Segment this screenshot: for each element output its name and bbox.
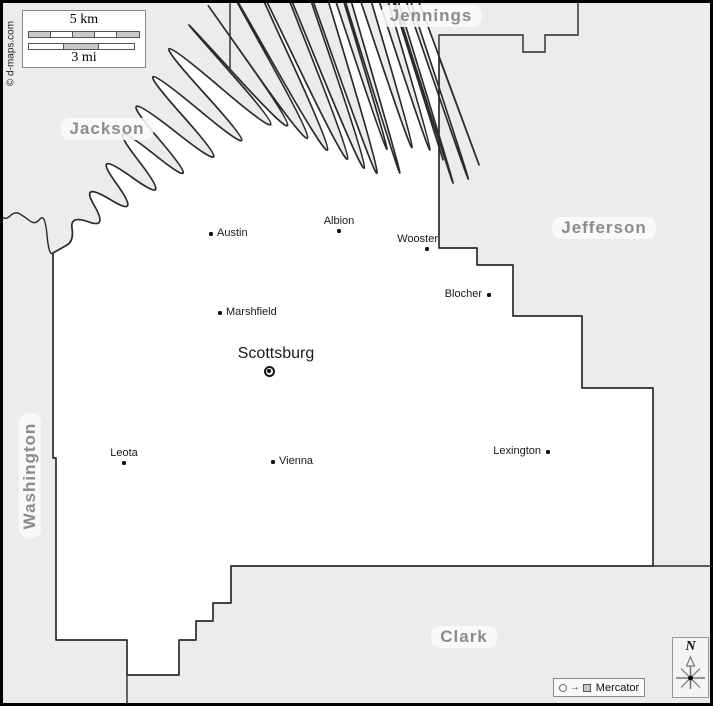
projection-label: Mercator [596,682,639,694]
scale-km-bar [28,31,140,38]
compass-star-icon [674,655,707,695]
county-seat-marker-icon [264,366,275,377]
scale-mi-bar [28,43,135,50]
town-dot [209,232,212,235]
town-label: Leota [110,447,138,459]
county-seat-label: Scottsburg [238,345,314,363]
town-label: Albion [324,215,355,227]
flat-map-square-icon [583,684,591,692]
attribution-text: © d-maps.com [6,9,17,99]
county-map-svg [0,0,713,706]
arrow-right-icon: → [570,684,580,692]
town-label: Blocher [445,288,482,300]
town-dot [425,247,428,250]
town-dot [271,460,274,463]
globe-circle-icon [559,684,567,692]
town-label: Vienna [279,455,313,467]
scale-mi-label: 3 mi [23,50,145,66]
town-dot [337,229,340,232]
town-dot [122,461,125,464]
compass-rose: N [672,637,709,698]
county-label-jefferson: Jefferson [552,217,656,239]
county-label-jennings: Jennings [381,5,482,27]
projection-legend: → Mercator [553,678,645,697]
compass-north-label: N [673,638,708,655]
town-dot [218,311,221,314]
county-label-jackson: Jackson [60,118,153,140]
town-dot [487,293,490,296]
map-canvas: Jennings Jackson Jefferson Washington Cl… [0,0,713,706]
town-label: Wooster [397,233,438,245]
town-label: Marshfield [226,306,277,318]
county-label-clark: Clark [431,626,497,648]
scale-bar: 5 km 3 mi [22,10,146,68]
town-dot [546,450,549,453]
county-label-washington: Washington [19,414,41,539]
town-label: Austin [217,227,248,239]
town-label: Lexington [493,445,541,457]
scale-km-label: 5 km [23,12,145,28]
